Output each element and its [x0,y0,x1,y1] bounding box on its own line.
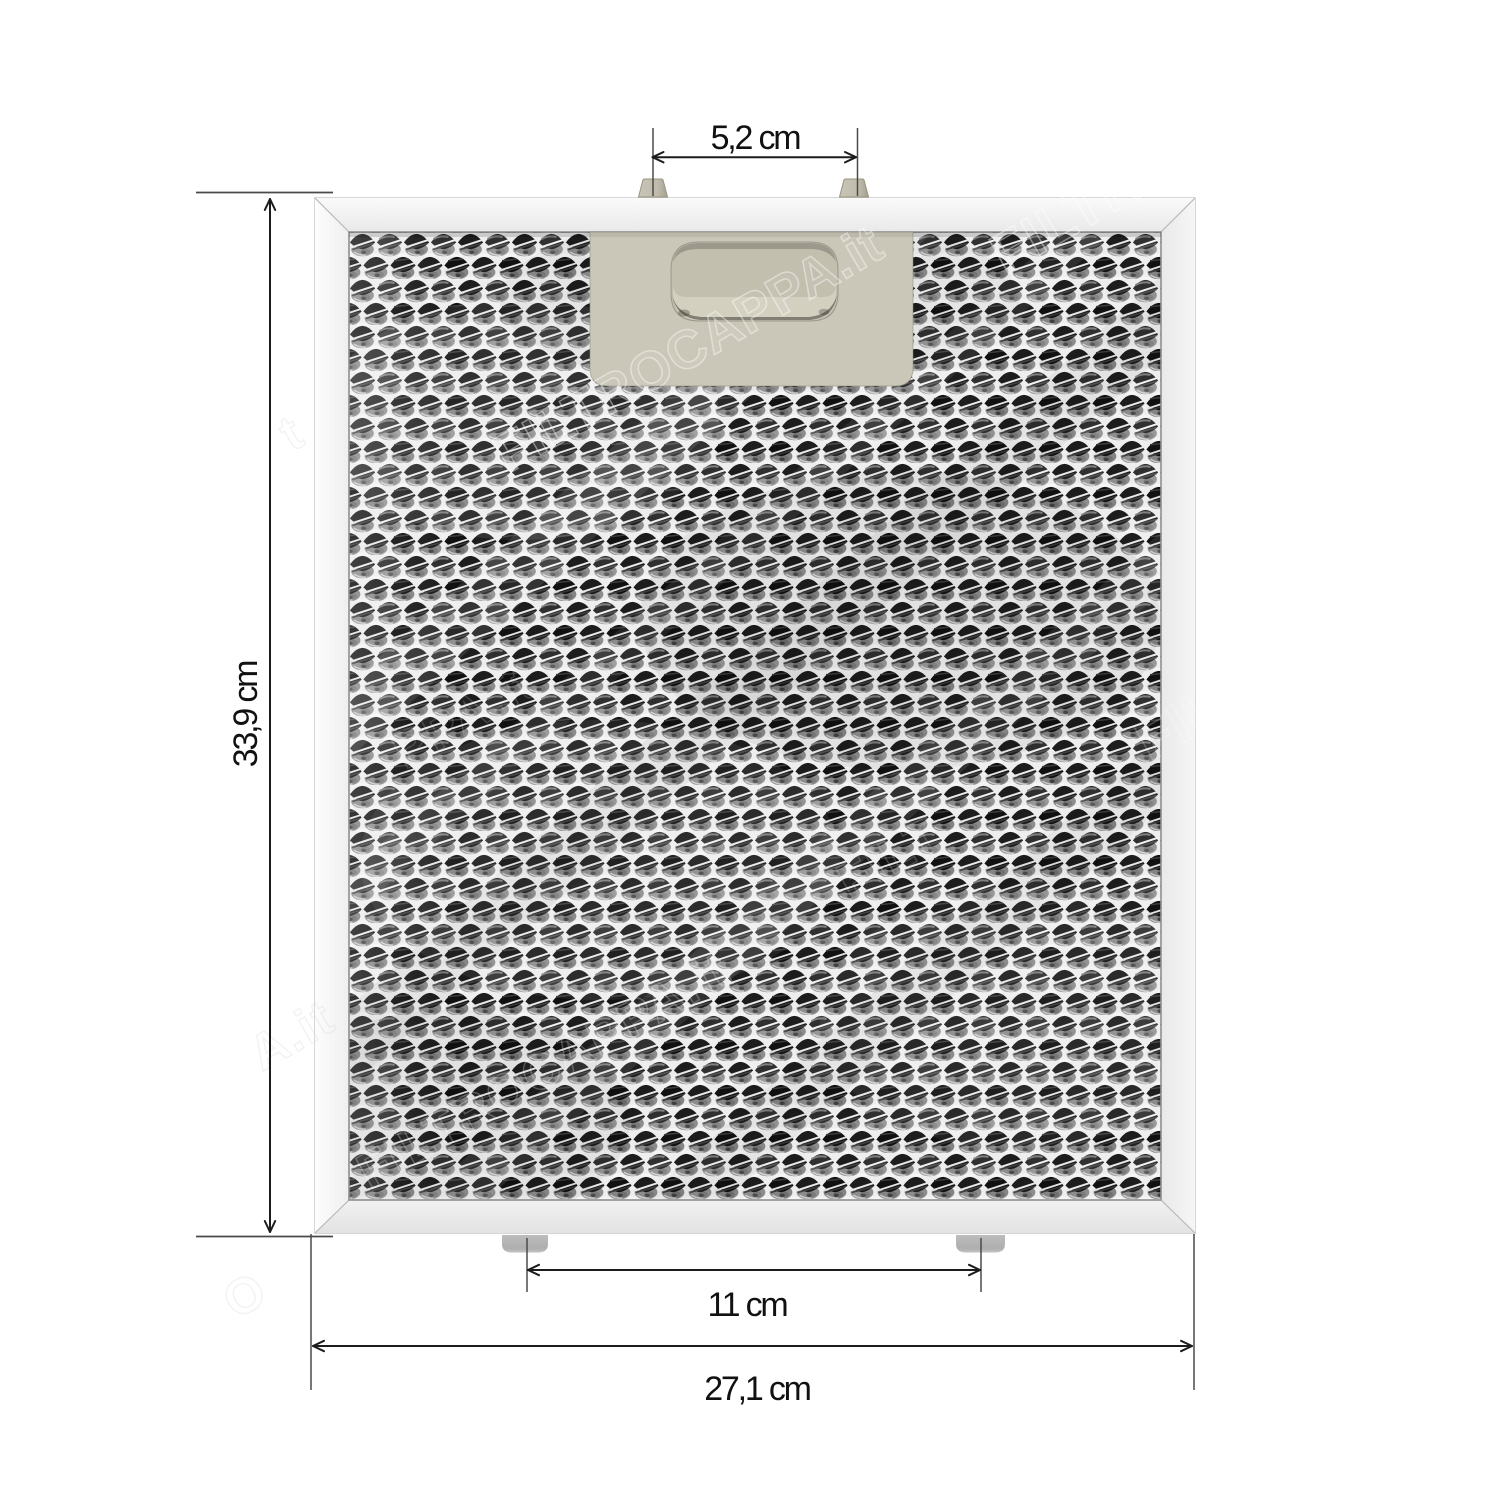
svg-text:27,1 cm: 27,1 cm [704,1370,810,1408]
svg-text:11 cm: 11 cm [707,1286,787,1324]
svg-text:5,2 cm: 5,2 cm [711,119,801,157]
svg-text:33,9 cm: 33,9 cm [227,661,265,767]
